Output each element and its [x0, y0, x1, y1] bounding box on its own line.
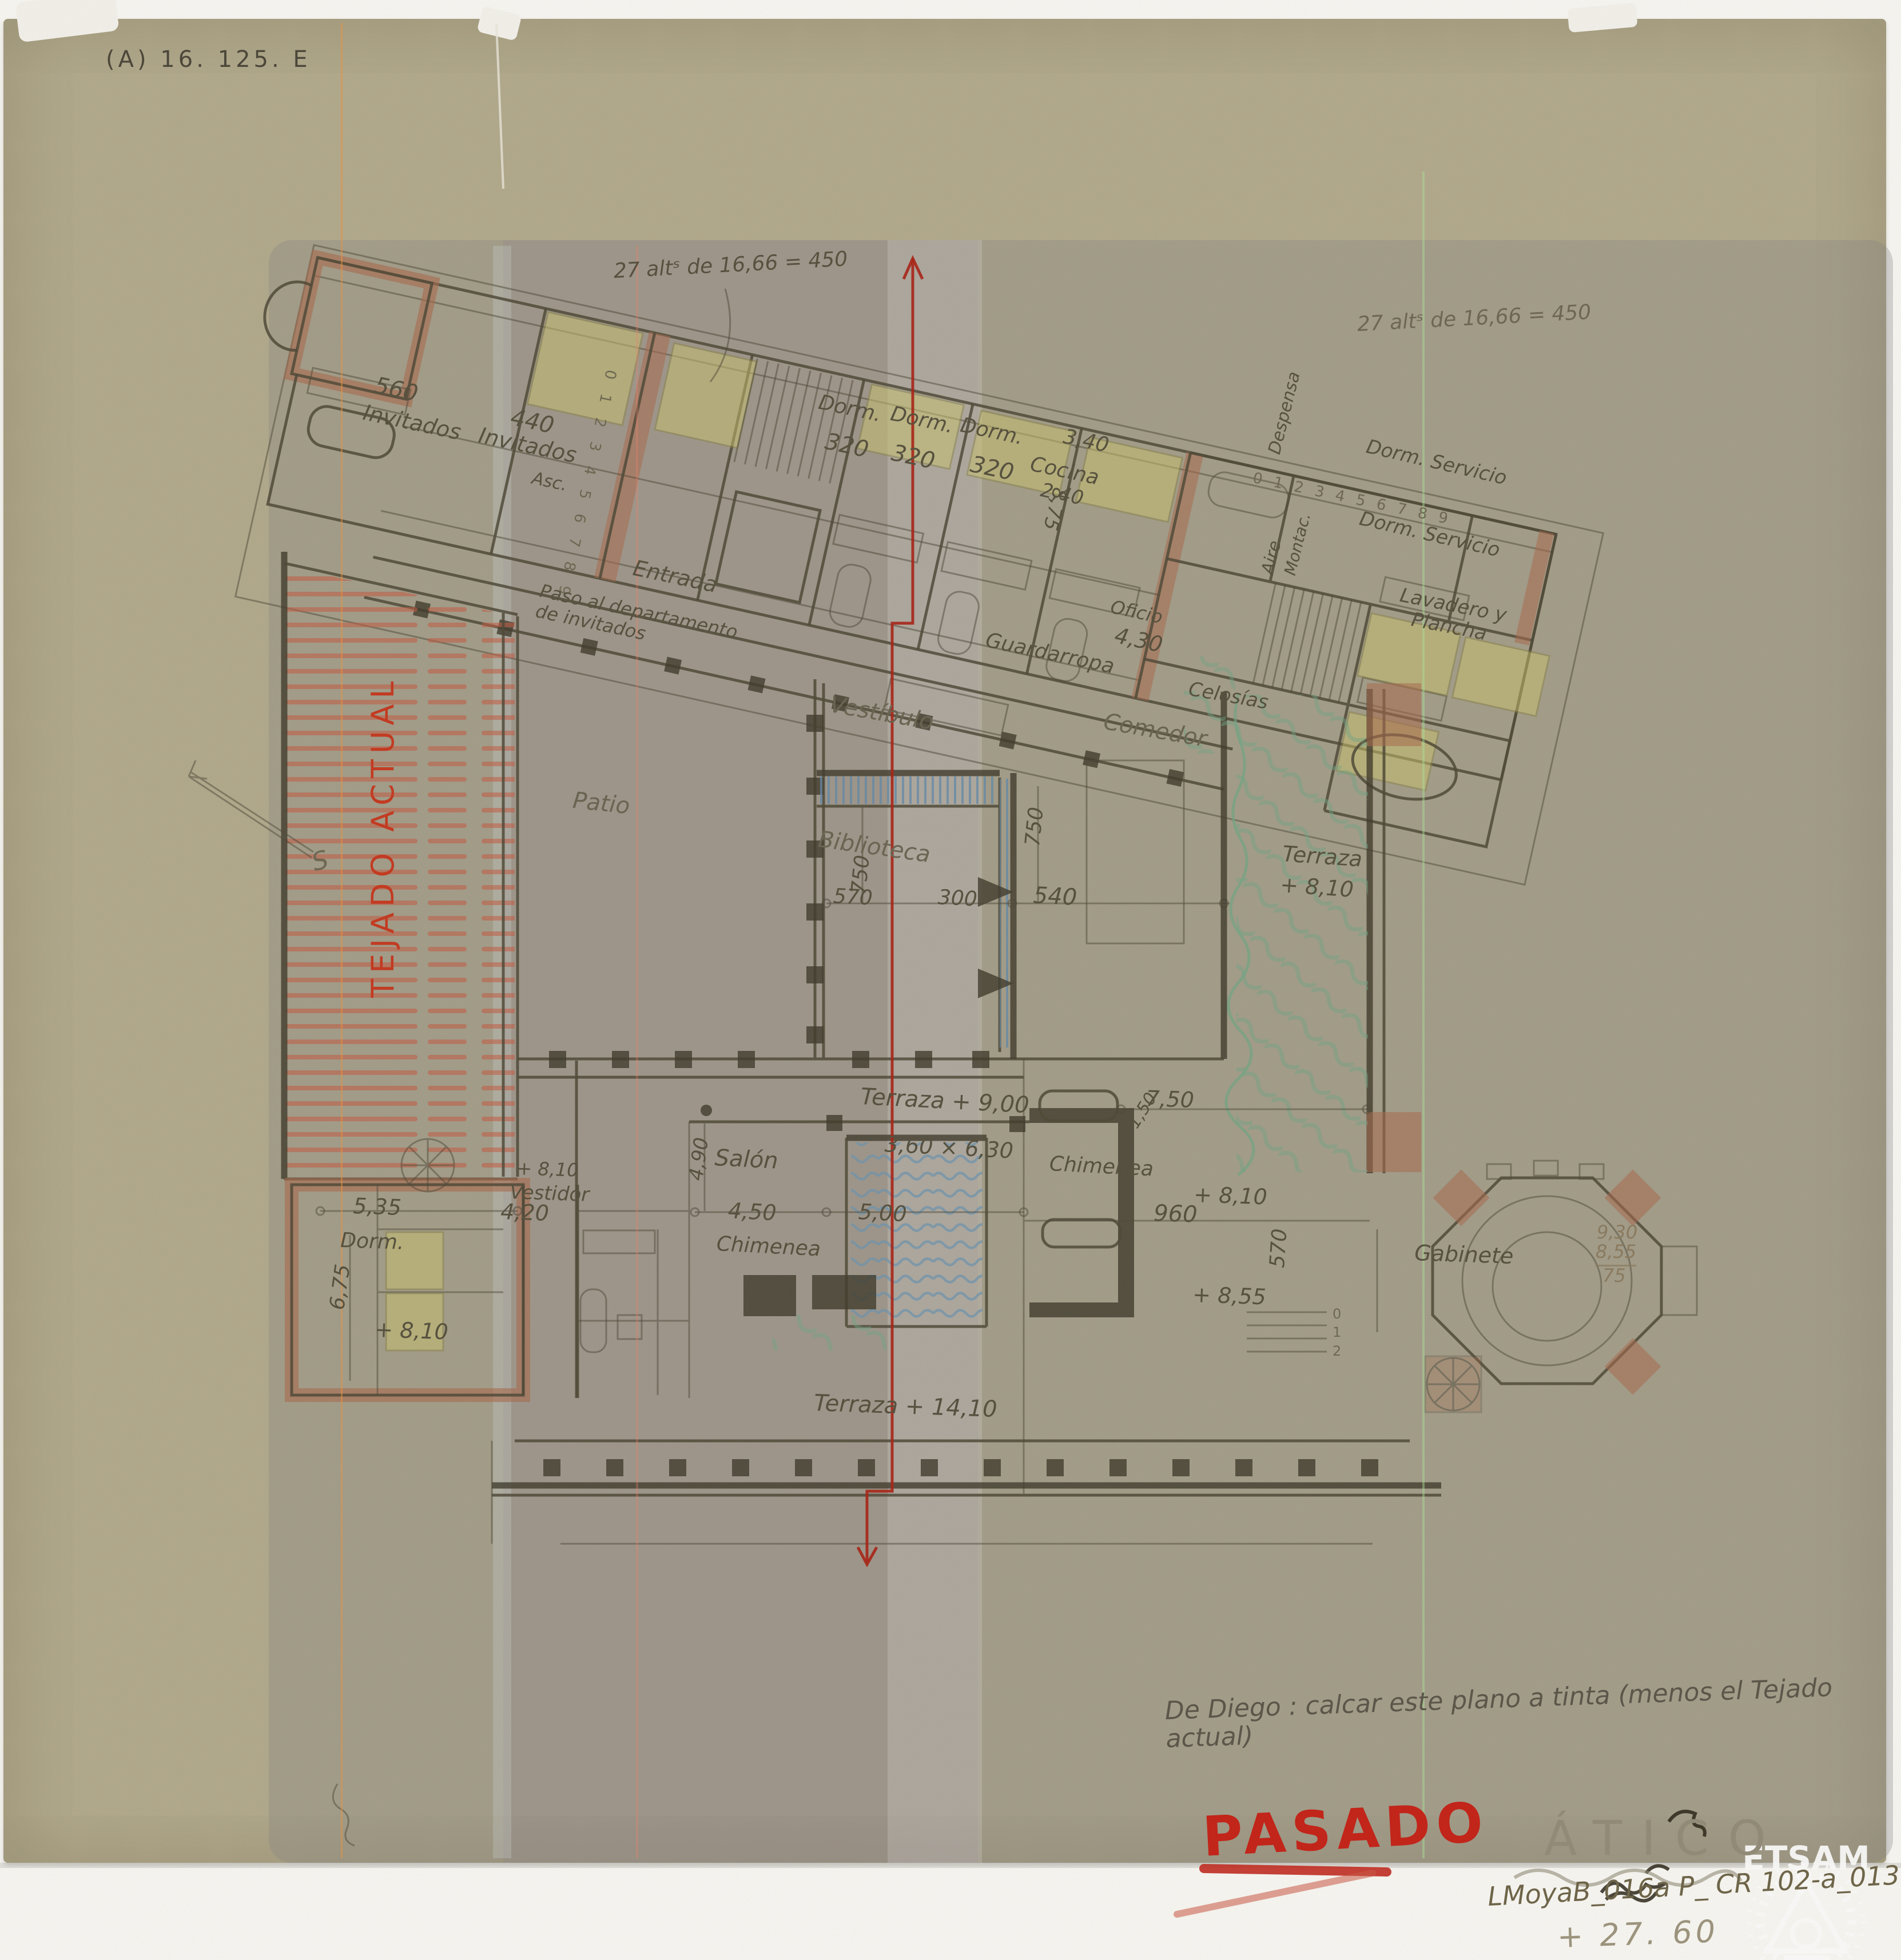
- label-level-810-estar: + 8,10: [1194, 1182, 1268, 1209]
- label-dim-300: 300: [937, 886, 978, 911]
- label-calc-930: 9,30: [1597, 1222, 1637, 1243]
- label-room-dorm-sw: Dorm.: [340, 1229, 404, 1254]
- label-dim-540: 540: [1033, 883, 1078, 911]
- label-tejado-actual: TEJADO ACTUAL: [366, 675, 400, 998]
- scanned-drawing: ETSAM (A) 16. 125. E 27 altˢ de 16,66 = …: [0, 0, 1901, 1960]
- paper-grain: [0, 17, 1901, 1864]
- label-dim-960: 960: [1153, 1201, 1198, 1228]
- label-room-gabinete: Gabinete: [1414, 1241, 1514, 1269]
- label-level-2760: + 27. 60: [1557, 1914, 1719, 1954]
- label-dim-570: 570: [833, 885, 873, 910]
- label-calc-855: 8,55: [1596, 1242, 1636, 1266]
- label-dim-535: 5,35: [353, 1194, 402, 1220]
- label-dim-450: 4,50: [727, 1198, 777, 1225]
- label-level-810-vestidor: + 8,10: [516, 1158, 579, 1181]
- label-terraza-east-level: + 8,10: [1279, 873, 1354, 902]
- label-room-salon: Salón: [714, 1145, 779, 1174]
- label-dim-750-b: 750: [1021, 806, 1048, 848]
- label-calc-75: 75: [1602, 1266, 1626, 1286]
- label-archive-code: (A) 16. 125. E: [106, 47, 311, 73]
- label-dim-500: 5,00: [858, 1200, 908, 1226]
- label-dim-750-c: 7,50: [1146, 1086, 1195, 1112]
- label-level-810-dorm: + 8,10: [375, 1317, 449, 1344]
- floor-plan-drawing: ETSAM: [0, 0, 1901, 1960]
- pasado-underline: [1177, 1869, 1387, 1914]
- label-dim-570-b: 570: [1266, 1228, 1292, 1268]
- label-terraza-east: Terraza: [1282, 842, 1363, 871]
- label-level-855: + 8,55: [1192, 1282, 1267, 1309]
- label-dim-420: 4,20: [500, 1200, 550, 1225]
- label-sheet-title-atico: ÁTICO: [1544, 1811, 1785, 1865]
- label-step-numbers: 0 1 2: [1333, 1305, 1341, 1360]
